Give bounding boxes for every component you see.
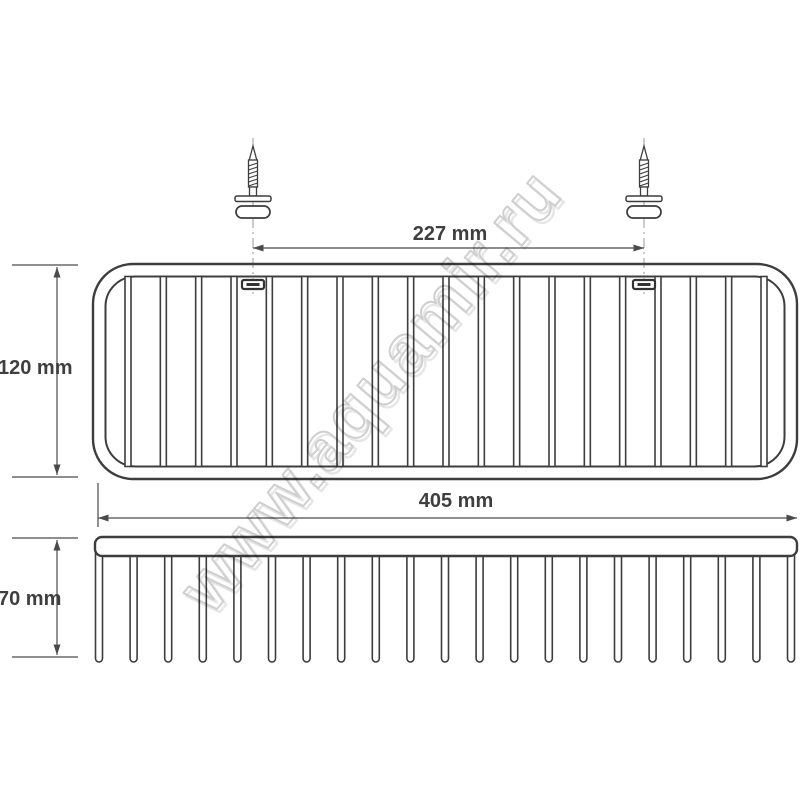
mount-tab-left <box>242 280 264 289</box>
wire <box>649 548 656 662</box>
wire <box>476 548 483 662</box>
grid-bar <box>196 277 202 467</box>
grid-bar <box>160 277 166 467</box>
dimension-label-basket-height: 120 mm <box>0 357 73 379</box>
wire <box>511 548 518 662</box>
wire <box>684 548 691 662</box>
wire <box>753 548 760 662</box>
wire <box>407 548 414 662</box>
grid-bar <box>231 277 237 467</box>
wire <box>130 548 137 662</box>
mounting-screw-right <box>626 138 662 298</box>
mounting-screw-left <box>235 138 271 298</box>
wire <box>338 548 345 662</box>
grid-bar <box>125 277 131 467</box>
dimension-drawing: 227 mm 120 mm 405 mm 70 mm <box>0 0 800 800</box>
wire <box>372 548 379 662</box>
wire <box>718 548 725 662</box>
grid-bar <box>584 277 590 467</box>
wire <box>615 548 622 662</box>
dimension-label-basket-depth: 70 mm <box>0 588 61 610</box>
grid-bar <box>514 277 520 467</box>
grid-bar <box>655 277 661 467</box>
grid-bar <box>266 277 272 467</box>
wire <box>580 548 587 662</box>
wire <box>788 548 795 662</box>
wire <box>96 548 103 662</box>
dimension-label-basket-width: 405 mm <box>419 490 494 512</box>
grid-bar <box>690 277 696 467</box>
grid-bar <box>726 277 732 467</box>
grid-bar <box>761 277 767 467</box>
wire <box>303 548 310 662</box>
wire <box>442 548 449 662</box>
wire <box>165 548 172 662</box>
grid-bar <box>620 277 626 467</box>
grid-bar <box>549 277 555 467</box>
wire <box>545 548 552 662</box>
mount-tab-right <box>633 280 655 289</box>
